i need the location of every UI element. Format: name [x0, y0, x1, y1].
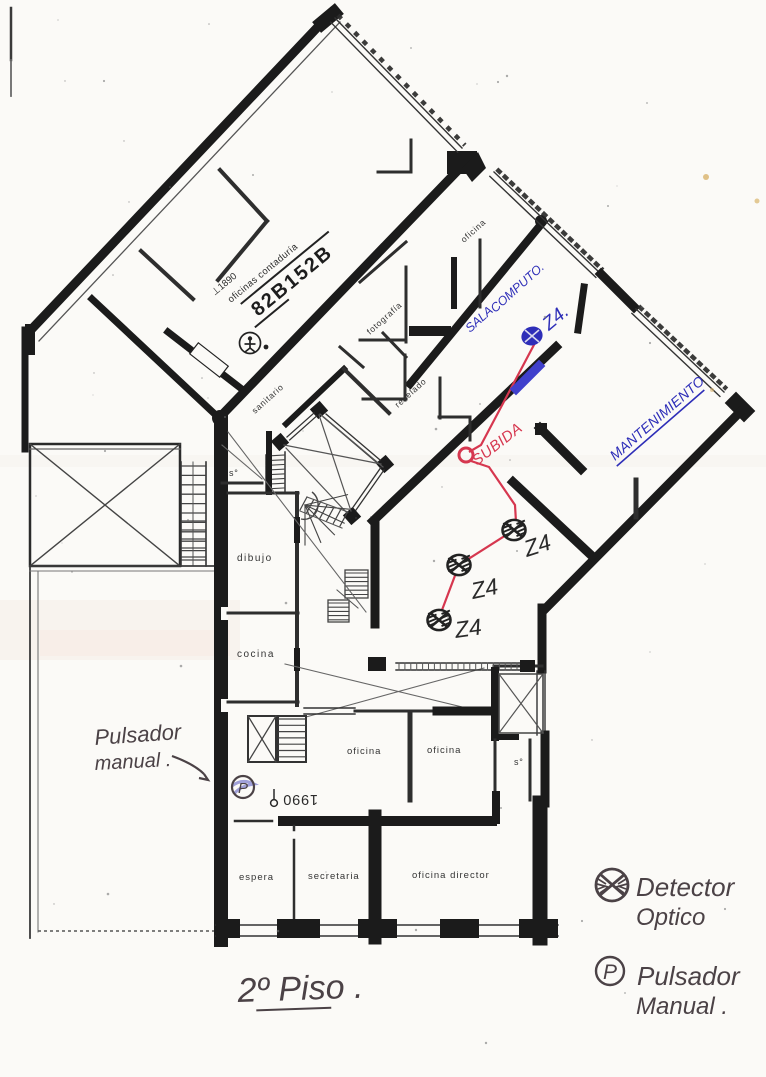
svg-text:s°: s° — [514, 757, 524, 767]
svg-text:1990: 1990 — [283, 791, 318, 807]
svg-text:oficina: oficina — [427, 745, 461, 756]
svg-text:Z4: Z4 — [452, 613, 483, 643]
svg-text:P: P — [238, 780, 248, 797]
svg-text:cocina: cocina — [237, 649, 275, 660]
svg-text:dibujo: dibujo — [237, 553, 273, 564]
svg-text:s°: s° — [229, 468, 239, 478]
svg-text:2º Piso .: 2º Piso . — [236, 968, 364, 1010]
svg-text:Manual .: Manual . — [636, 993, 728, 1020]
svg-text:oficina: oficina — [347, 746, 381, 757]
svg-text:manual .: manual . — [94, 749, 172, 775]
svg-text:P: P — [603, 961, 617, 984]
svg-text:Detector: Detector — [636, 872, 736, 902]
svg-text:Optico: Optico — [636, 904, 705, 931]
svg-text:Pulsador: Pulsador — [637, 961, 741, 991]
svg-text:oficina director: oficina director — [412, 870, 490, 881]
svg-text:espera: espera — [239, 872, 274, 883]
svg-text:secretaria: secretaria — [308, 871, 360, 882]
